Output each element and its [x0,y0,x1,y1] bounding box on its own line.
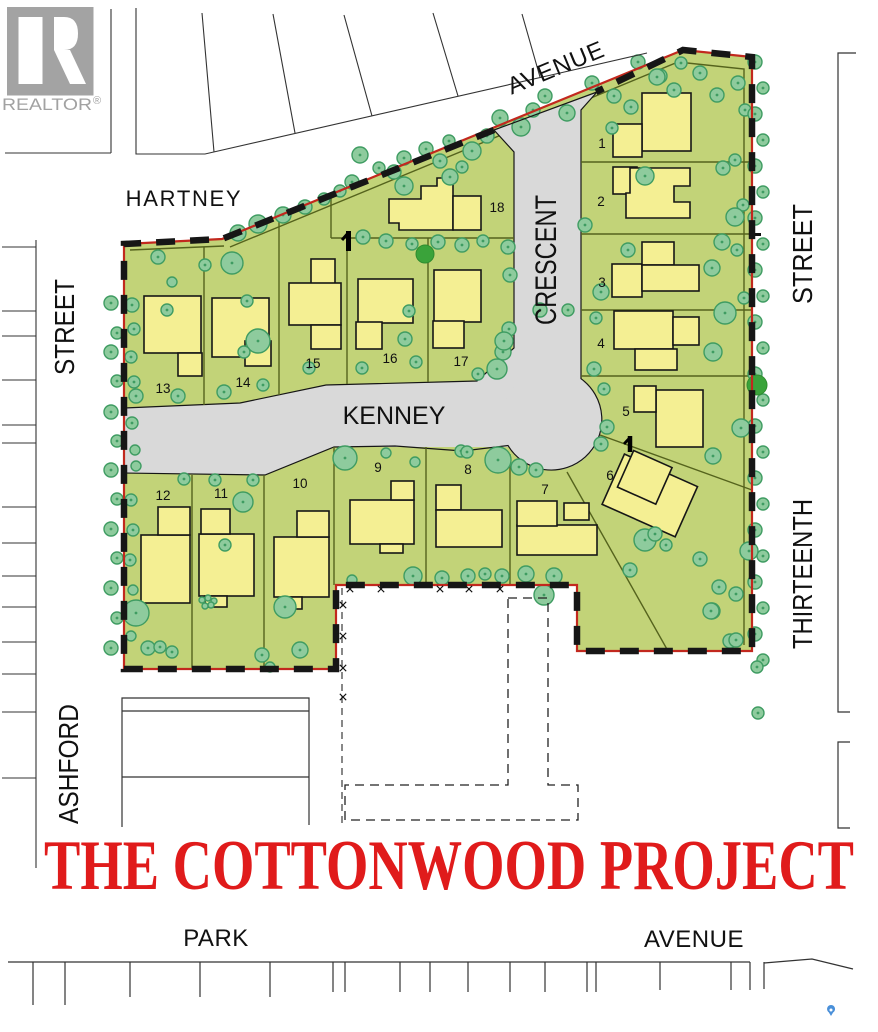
svg-text:5: 5 [622,404,630,419]
svg-text:12: 12 [155,488,170,503]
svg-text:AVENUE: AVENUE [644,926,744,953]
svg-text:3: 3 [598,275,606,290]
svg-text:1: 1 [598,136,606,151]
svg-text:REALTOR: REALTOR [2,95,92,114]
svg-text:STREET: STREET [787,204,818,304]
svg-text:CRESCENT: CRESCENT [530,195,563,325]
svg-text:14: 14 [235,375,251,390]
svg-text:11: 11 [214,486,228,501]
svg-text:16: 16 [382,351,397,366]
svg-text:8: 8 [464,462,472,477]
svg-text:2: 2 [597,194,605,209]
svg-text:7: 7 [541,482,549,497]
svg-text:18: 18 [489,200,504,215]
svg-text:THIRTEENTH: THIRTEENTH [787,499,818,649]
svg-text:4: 4 [597,336,605,351]
svg-text:HARTNEY: HARTNEY [126,186,243,211]
svg-text:15: 15 [305,356,320,371]
svg-text:10: 10 [292,476,307,491]
svg-text:STREET: STREET [49,279,80,375]
svg-text:KENNEY: KENNEY [343,402,446,430]
svg-text:17: 17 [453,354,468,369]
svg-text:6: 6 [606,468,614,483]
svg-text:13: 13 [155,381,170,396]
svg-text:9: 9 [374,460,382,475]
svg-text:PARK: PARK [183,925,249,952]
svg-text:ASHFORD: ASHFORD [53,704,84,824]
svg-text:THE COTTONWOOD PROJECT: THE COTTONWOOD PROJECT [44,827,854,905]
svg-text:®: ® [93,95,101,107]
